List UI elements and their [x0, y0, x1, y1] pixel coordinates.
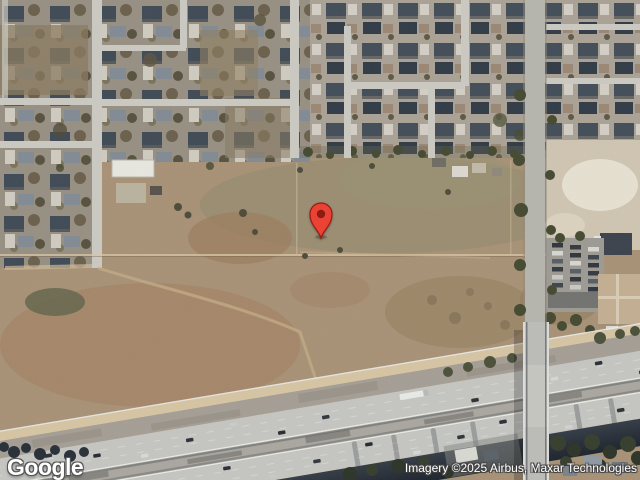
- google-logo[interactable]: Google: [7, 454, 83, 480]
- imagery-attribution: Imagery ©2025 Airbus, Maxar Technologies: [405, 461, 637, 475]
- pin-dot: [317, 210, 325, 218]
- map-viewport: Google Imagery ©2025 Airbus, Maxar Techn…: [0, 0, 640, 480]
- location-pin-icon[interactable]: [299, 196, 343, 242]
- pin-body: [310, 203, 332, 238]
